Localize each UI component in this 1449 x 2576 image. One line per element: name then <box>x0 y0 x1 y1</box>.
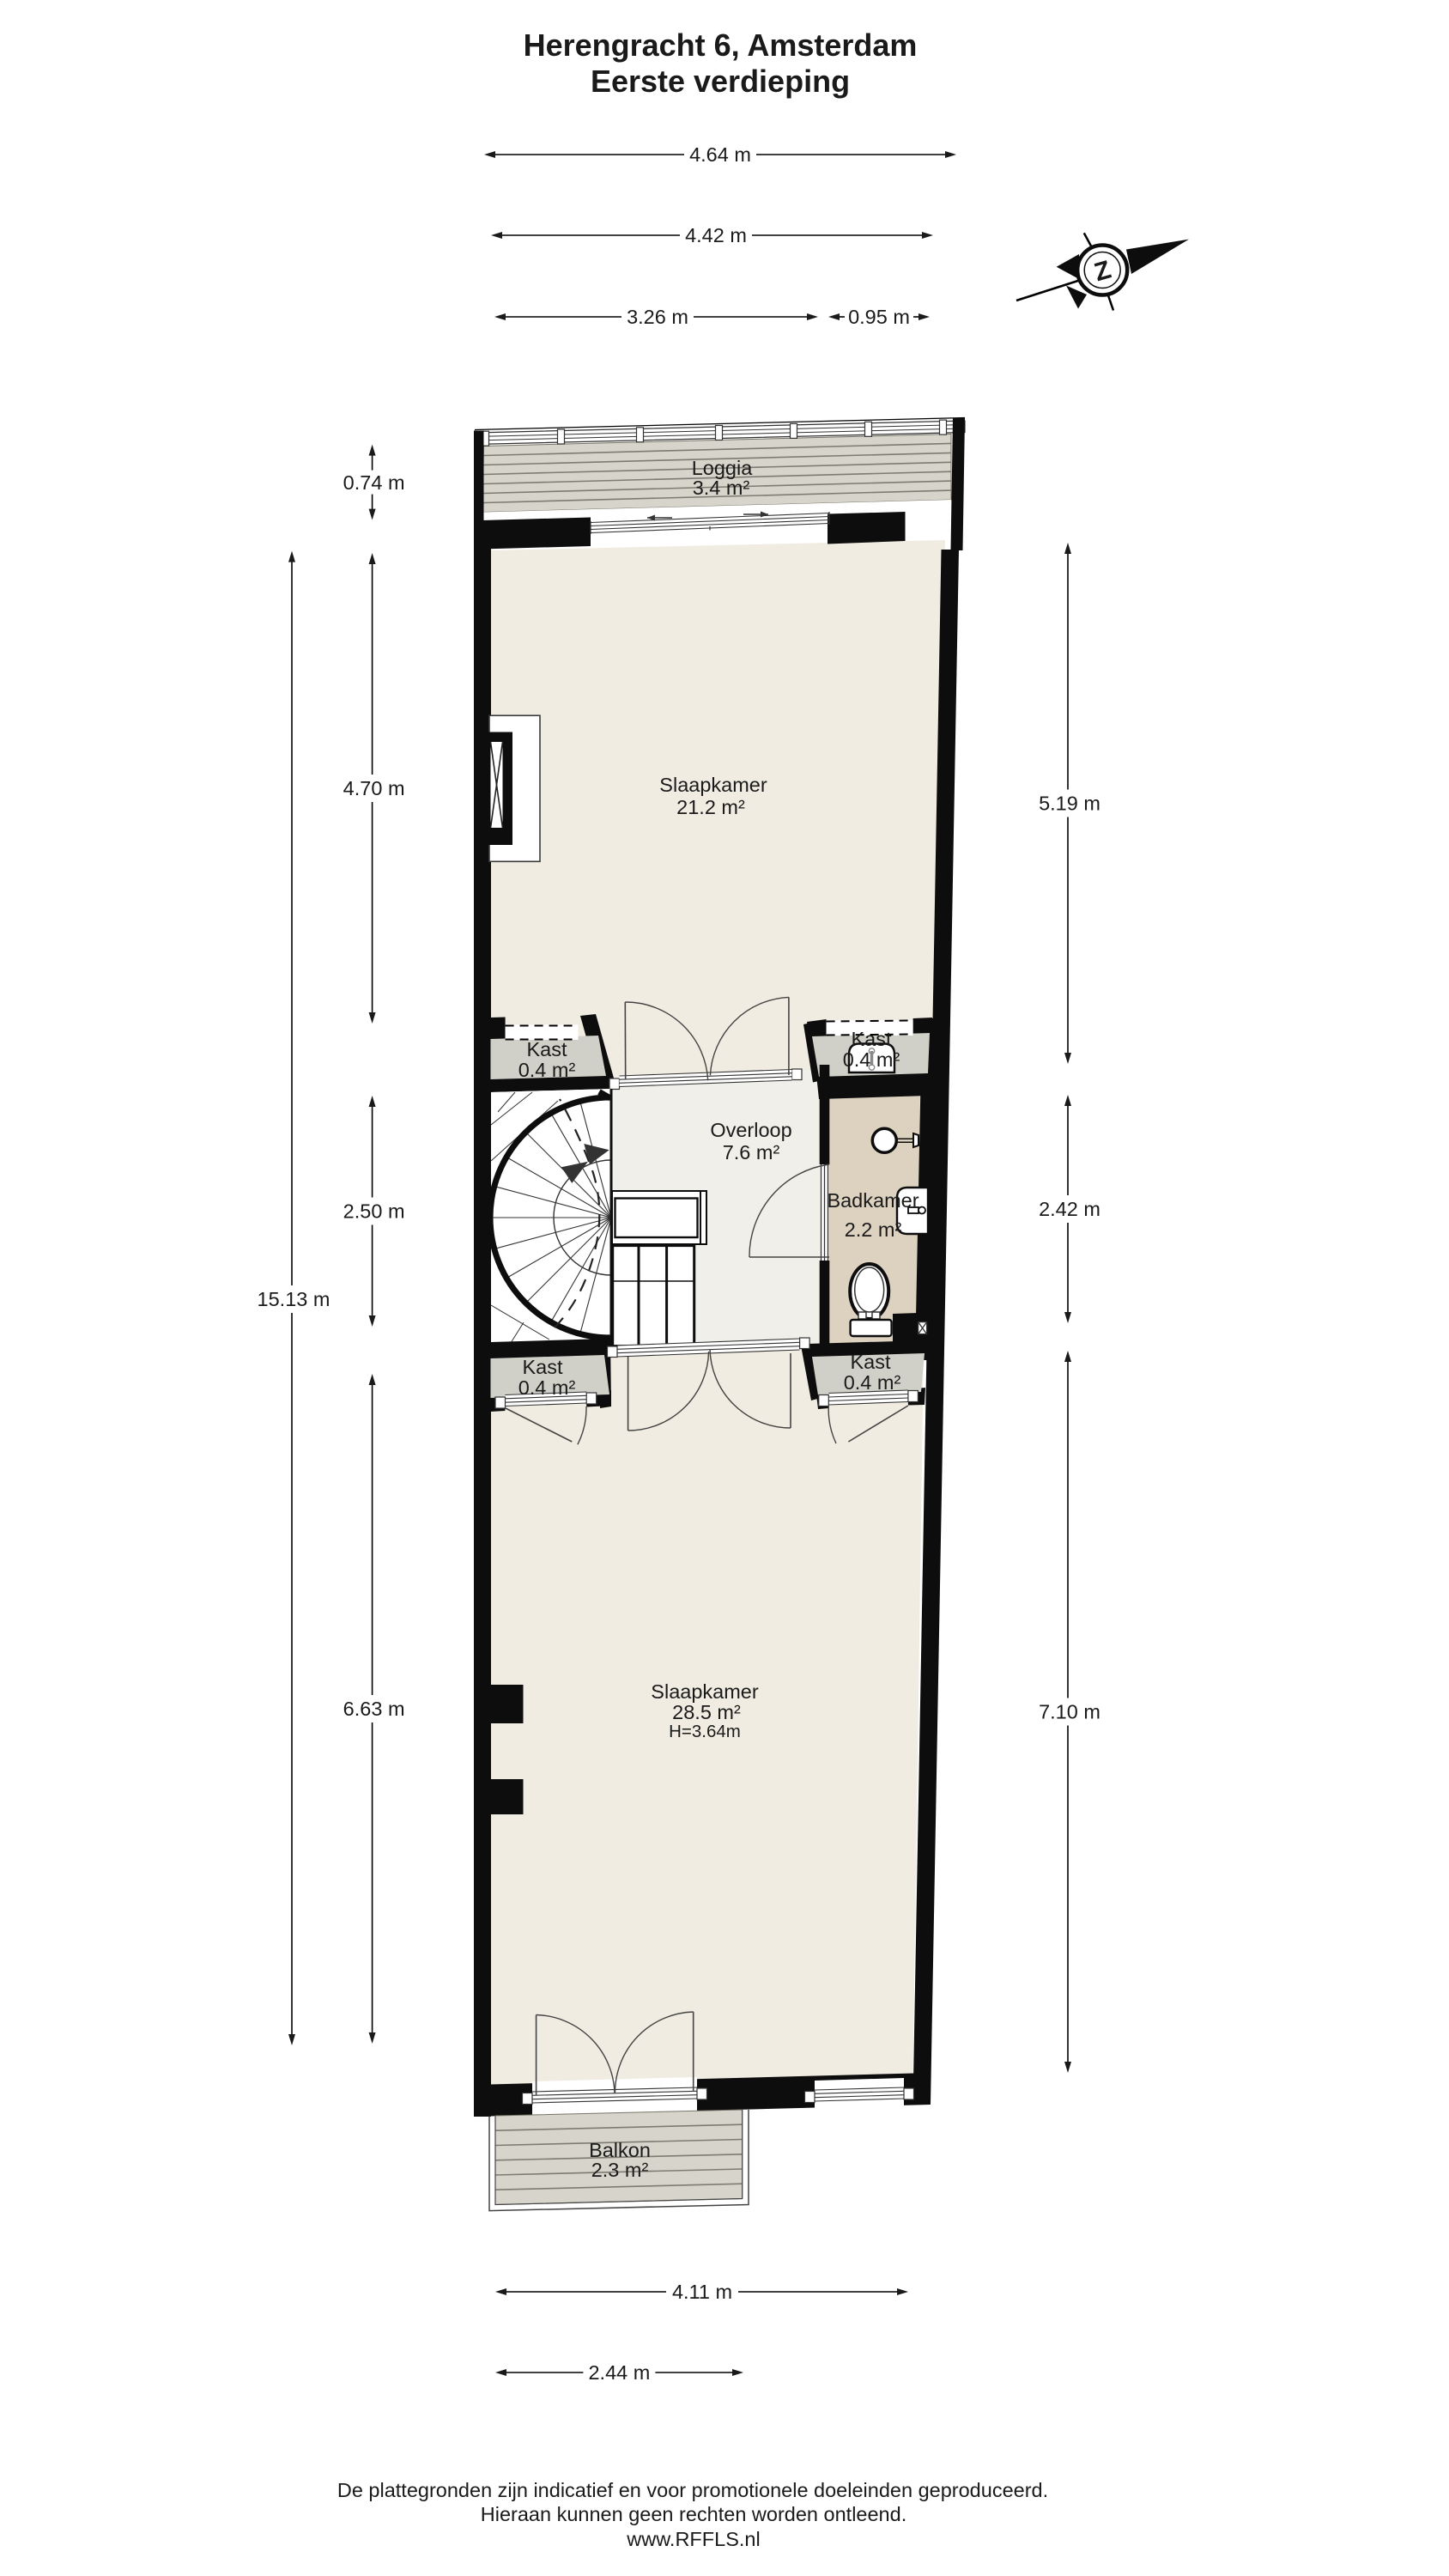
svg-text:3.4 m²: 3.4 m² <box>693 477 750 499</box>
svg-text:H=3.64m: H=3.64m <box>669 1722 741 1741</box>
svg-text:Overloop: Overloop <box>710 1119 791 1141</box>
svg-text:Kast: Kast <box>526 1038 567 1060</box>
svg-text:www.RFFLS.nl: www.RFFLS.nl <box>626 2528 760 2550</box>
svg-text:2.2 m²: 2.2 m² <box>845 1218 902 1241</box>
svg-text:3.26 m: 3.26 m <box>627 306 688 328</box>
svg-text:2.3 m²: 2.3 m² <box>591 2159 649 2181</box>
svg-text:Kast: Kast <box>850 1351 890 1373</box>
svg-text:Slaapkamer: Slaapkamer <box>659 774 767 796</box>
svg-text:0.95 m: 0.95 m <box>848 306 910 328</box>
svg-text:0.4 m²: 0.4 m² <box>844 1371 901 1394</box>
svg-text:Herengracht 6, Amsterdam: Herengracht 6, Amsterdam <box>524 27 918 63</box>
svg-text:6.63 m: 6.63 m <box>343 1698 405 1720</box>
svg-text:Kast: Kast <box>522 1356 562 1378</box>
svg-text:2.50 m: 2.50 m <box>343 1200 405 1223</box>
svg-text:7.10 m: 7.10 m <box>1039 1701 1100 1723</box>
svg-text:5.19 m: 5.19 m <box>1039 793 1100 815</box>
svg-text:4.42 m: 4.42 m <box>685 224 747 246</box>
svg-text:0.4 m²: 0.4 m² <box>518 1376 576 1399</box>
svg-text:21.2 m²: 21.2 m² <box>676 796 745 818</box>
svg-text:De plattegronden zijn indicati: De plattegronden zijn indicatief en voor… <box>337 2479 1048 2501</box>
svg-text:2.42 m: 2.42 m <box>1039 1198 1100 1220</box>
svg-text:7.6 m²: 7.6 m² <box>723 1141 780 1163</box>
svg-text:0.4 m²: 0.4 m² <box>518 1059 576 1081</box>
svg-text:Badkamer: Badkamer <box>827 1189 919 1212</box>
svg-text:Slaapkamer: Slaapkamer <box>651 1680 759 1703</box>
svg-text:Eerste verdieping: Eerste verdieping <box>591 64 850 99</box>
svg-text:2.44 m: 2.44 m <box>588 2361 650 2384</box>
svg-text:4.70 m: 4.70 m <box>343 777 405 799</box>
svg-text:4.64 m: 4.64 m <box>689 143 751 166</box>
svg-text:4.11 m: 4.11 m <box>672 2281 732 2303</box>
svg-text:28.5 m²: 28.5 m² <box>672 1701 741 1723</box>
svg-text:15.13 m: 15.13 m <box>258 1288 330 1310</box>
svg-text:0.74 m: 0.74 m <box>343 471 405 494</box>
svg-text:Kast: Kast <box>851 1028 891 1050</box>
svg-text:0.4 m²: 0.4 m² <box>843 1048 900 1071</box>
svg-text:Hieraan kunnen geen rechten wo: Hieraan kunnen geen rechten worden ontle… <box>481 2503 906 2525</box>
